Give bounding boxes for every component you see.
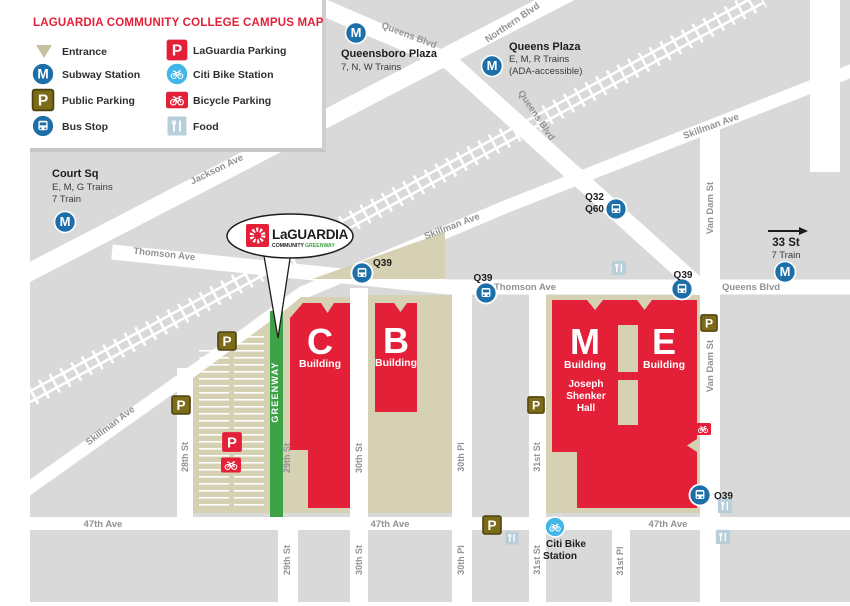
food-icon bbox=[505, 531, 518, 544]
laguardia-logo-text: LaGUARDIA bbox=[272, 227, 349, 242]
30th-st-label: 30th St bbox=[354, 443, 364, 473]
legend-shadow bbox=[30, 148, 326, 152]
queens-blvd-label: Queens Blvd bbox=[722, 282, 780, 293]
legend-entrance-label: Entrance bbox=[62, 46, 107, 58]
legend-panel: LAGUARDIA COMMUNITY COLLEGE CAMPUS MAP E… bbox=[0, 0, 326, 152]
thomson-ave-label: Thomson Ave bbox=[494, 282, 556, 293]
van-dam-label: Van Dam St bbox=[705, 181, 716, 234]
30th-st-label: 30th St bbox=[354, 545, 364, 575]
legend-bicycle-parking-label: Bicycle Parking bbox=[193, 95, 271, 107]
bus-stop-icon bbox=[32, 115, 54, 137]
building-b-label: Building bbox=[375, 357, 417, 369]
29th-st-label: 29th St bbox=[282, 443, 292, 473]
parking-rows-right bbox=[234, 336, 264, 508]
building-b-letter: B bbox=[383, 320, 409, 361]
food-icon bbox=[168, 117, 187, 136]
queensboro-plaza-name: Queensboro Plaza bbox=[341, 48, 438, 60]
queens-plaza-subway-icon bbox=[482, 56, 503, 77]
building-e-label: Building bbox=[643, 359, 685, 371]
legend-subway-label: Subway Station bbox=[62, 69, 140, 81]
30th-pl-label: 30th Pl bbox=[456, 442, 466, 472]
q39-label: Q39 bbox=[373, 258, 392, 269]
29th-st-label: 29th St bbox=[282, 545, 292, 575]
bicycle-parking-icon bbox=[695, 423, 711, 435]
food-icon bbox=[716, 530, 730, 544]
food-icon bbox=[612, 261, 626, 275]
queensboro-plaza-lines: 7, N, W Trains bbox=[341, 62, 401, 73]
legend-food-label: Food bbox=[193, 121, 219, 133]
q32-label: Q32 bbox=[585, 192, 604, 203]
shenker-hall-label: Hall bbox=[577, 403, 596, 414]
legend-citi-bike-label: Citi Bike Station bbox=[193, 69, 274, 81]
citi-bike-station-label: Station bbox=[543, 551, 577, 562]
map-canvas: M P P bbox=[0, 0, 850, 606]
q60-label: Q60 bbox=[585, 204, 604, 215]
logo-community-text: COMMUNITY bbox=[272, 243, 305, 249]
47th-ave-label: 47th Ave bbox=[84, 519, 123, 530]
greenway-label: GREENWAY bbox=[270, 361, 280, 422]
31st-pl-label: 31st Pl bbox=[615, 546, 625, 575]
33st-subway-icon bbox=[775, 262, 796, 283]
public-parking-icon bbox=[528, 397, 544, 413]
33st-lines: 7 Train bbox=[771, 250, 800, 261]
campus-map: M P P bbox=[0, 0, 850, 606]
47th-ave-label: 47th Ave bbox=[649, 519, 688, 530]
legend-bus-stop-label: Bus Stop bbox=[62, 121, 108, 133]
q39-bus-icon bbox=[690, 485, 711, 506]
31st-st-label: 31st St bbox=[532, 442, 542, 472]
q39-label: Q39 bbox=[674, 270, 693, 281]
q39-bus-icon bbox=[672, 279, 693, 300]
building-me-courtyard bbox=[618, 380, 638, 425]
building-m-label: Building bbox=[564, 359, 606, 371]
public-parking-icon bbox=[483, 516, 501, 534]
court-sq-lines2: 7 Train bbox=[52, 194, 81, 205]
building-me-courtyard bbox=[618, 325, 638, 372]
28th-st-label: 28th St bbox=[180, 442, 190, 472]
public-parking-icon bbox=[172, 396, 190, 414]
citi-bike-icon bbox=[166, 63, 188, 85]
building-e-letter: E bbox=[652, 321, 676, 362]
33st-name: 33 St bbox=[772, 237, 800, 249]
subway-station-icon bbox=[32, 63, 54, 85]
q39-label: Q39 bbox=[474, 273, 493, 284]
30th-pl-label: 30th Pl bbox=[456, 545, 466, 575]
public-parking-icon bbox=[218, 332, 236, 350]
bicycle-parking-icon bbox=[221, 458, 241, 473]
shenker-hall-label: Joseph bbox=[568, 379, 603, 390]
legend-laguardia-parking-label: LaGuardia Parking bbox=[193, 45, 286, 57]
building-c-letter: C bbox=[307, 321, 333, 362]
logo-greenway-text: GREENWAY bbox=[305, 243, 335, 249]
bicycle-parking-icon bbox=[166, 92, 188, 109]
citi-bike-station-label: Citi Bike bbox=[546, 539, 586, 550]
laguardia-parking-icon bbox=[167, 40, 188, 61]
citi-bike-icon bbox=[545, 517, 565, 537]
queens-plaza-name: Queens Plaza bbox=[509, 41, 581, 53]
building-m-letter: M bbox=[570, 321, 600, 362]
q39-bus-icon bbox=[352, 263, 373, 284]
laguardia-logo-mark bbox=[246, 224, 269, 247]
legend-public-parking-label: Public Parking bbox=[62, 95, 135, 107]
queens-plaza-lines: E, M, R Trains bbox=[509, 54, 569, 65]
laguardia-parking-icon bbox=[222, 432, 242, 452]
q39-bus-icon bbox=[476, 283, 497, 304]
public-parking-icon bbox=[701, 315, 717, 331]
47th-ave-label: 47th Ave bbox=[371, 519, 410, 530]
q32-q60-bus-icon bbox=[606, 199, 627, 220]
map-title: LAGUARDIA COMMUNITY COLLEGE CAMPUS MAP bbox=[33, 17, 324, 29]
shenker-hall-label: Shenker bbox=[566, 391, 606, 402]
street-unnamed-north bbox=[810, 0, 840, 172]
public-parking-icon bbox=[33, 90, 54, 111]
street-47th-ave bbox=[25, 517, 850, 530]
court-sq-lines: E, M, G Trains bbox=[52, 182, 113, 193]
court-sq-name: Court Sq bbox=[52, 168, 98, 180]
van-dam-label: Van Dam St bbox=[705, 339, 716, 392]
building-c-label: Building bbox=[299, 358, 341, 370]
food-icon bbox=[718, 499, 732, 513]
queens-plaza-ada: (ADA-accessible) bbox=[509, 66, 582, 77]
queensboro-plaza-subway-icon bbox=[346, 23, 367, 44]
court-sq-subway-icon bbox=[55, 212, 76, 233]
parking-rows-left bbox=[199, 350, 229, 508]
31st-st-label: 31st St bbox=[532, 545, 542, 575]
